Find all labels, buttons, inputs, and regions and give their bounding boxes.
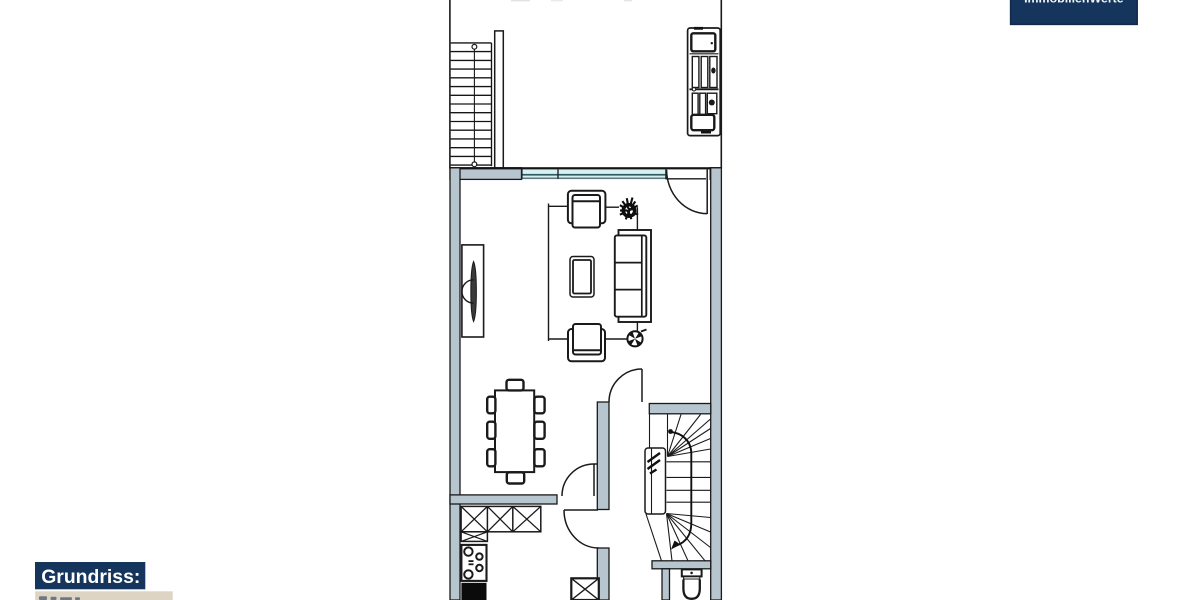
svg-text:ImmobilienWerte: ImmobilienWerte xyxy=(1024,0,1124,6)
svg-text:Grundriss:: Grundriss: xyxy=(41,566,140,588)
